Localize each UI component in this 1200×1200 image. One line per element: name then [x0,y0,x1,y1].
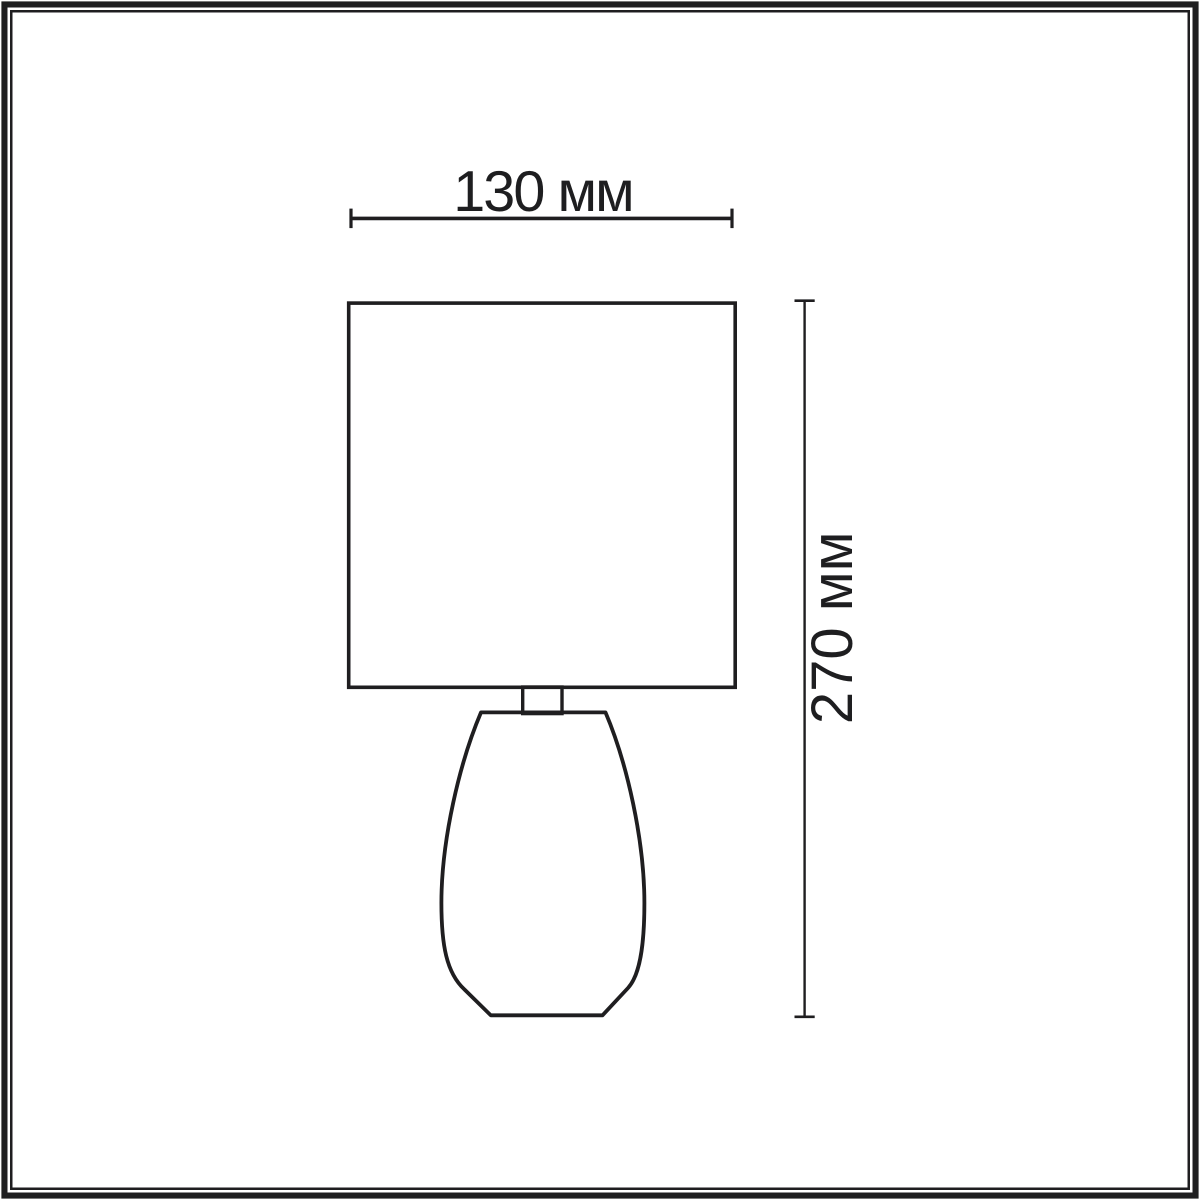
svg-text:130 мм: 130 мм [453,160,633,224]
svg-text:270 мм: 270 мм [800,531,865,724]
